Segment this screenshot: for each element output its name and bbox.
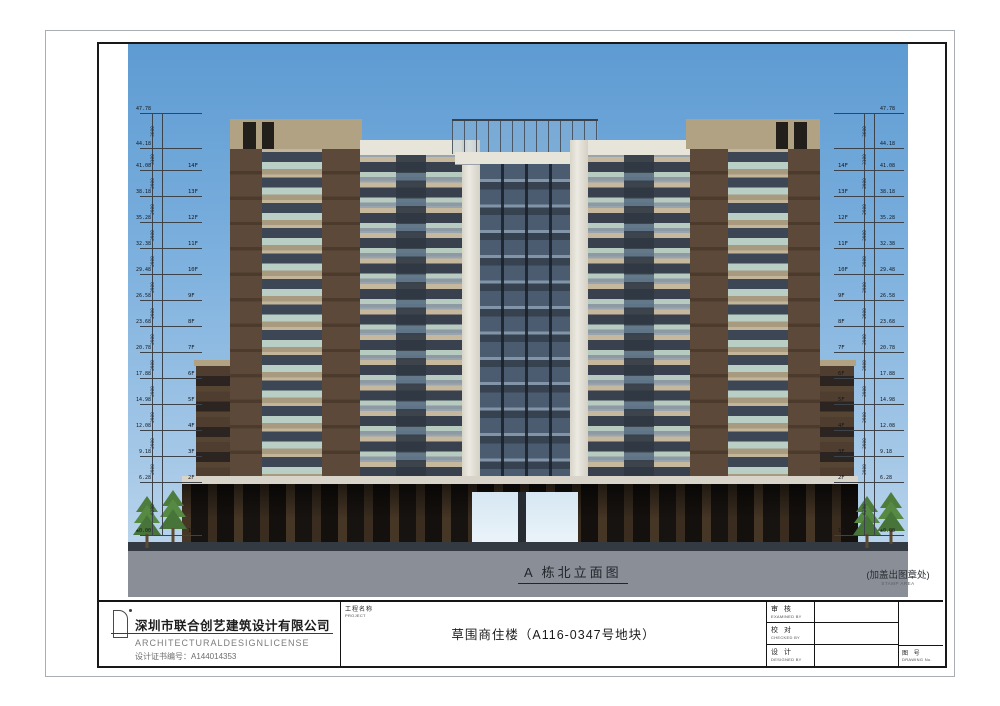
segment-height-dim: 2900 <box>151 412 156 423</box>
right-balcony-wing <box>728 149 788 476</box>
left-brown-pier <box>230 149 262 476</box>
segment-height-dim: 3100 <box>151 154 156 165</box>
level-elevation: 35.28 <box>136 216 151 221</box>
level-tick <box>834 248 904 249</box>
segment-height-dim: 3600 <box>151 126 156 137</box>
designed-by-en: DESIGNED BY <box>771 657 814 662</box>
dimension-line <box>874 113 875 535</box>
designed-by-value <box>815 645 898 666</box>
level-tick <box>834 222 904 223</box>
level-elevation: 20.78 <box>136 346 151 351</box>
floor-label: 12F <box>838 215 848 221</box>
left-roof-bulkhead-2 <box>262 122 274 149</box>
level-elevation: 32.38 <box>880 242 895 247</box>
floor-label: 5F <box>838 397 845 403</box>
level-elevation: 38.18 <box>136 190 151 195</box>
level-elevation: 6.28 <box>136 476 151 481</box>
floor-label: 13F <box>188 189 198 195</box>
floor-label: 8F <box>188 319 195 325</box>
project-name: 草围商住楼（A116-0347号地块） <box>341 624 766 643</box>
level-tick <box>140 170 202 171</box>
project-label: 工程名称 PROJECT <box>345 604 373 618</box>
level-elevation: 32.38 <box>136 242 151 247</box>
level-tick <box>834 300 904 301</box>
right-mid-brown-pier <box>690 149 728 476</box>
level-tick <box>140 352 202 353</box>
segment-height-dim: 2900 <box>151 386 156 397</box>
floor-label: 10F <box>838 267 848 273</box>
level-elevation: 44.18 <box>880 142 895 147</box>
level-tick <box>834 378 904 379</box>
segment-height-dim: 2900 <box>863 178 868 189</box>
level-elevation: 29.48 <box>136 268 151 273</box>
floor-label: 10F <box>188 267 198 273</box>
right-brown-pier <box>788 149 820 476</box>
left-white-strip <box>462 140 480 476</box>
level-tick <box>834 352 904 353</box>
checked-by-en: CHECKED BY <box>771 635 814 640</box>
segment-height-dim: 6280 <box>863 504 868 515</box>
company-cert-number: 设计证书编号：A144014353 <box>135 651 236 662</box>
level-elevation: 17.88 <box>136 372 151 377</box>
elevation-rendering: A 栋北立面图 <box>128 44 908 597</box>
level-tick <box>140 148 202 149</box>
left-roof-bulkhead-1 <box>243 122 256 149</box>
left-tower-window-stack <box>396 155 426 476</box>
title-block: 深圳市联合创艺建筑设计有限公司 ARCHITECTURALDESIGNLICEN… <box>99 600 943 664</box>
floor-label: 8F <box>838 319 845 325</box>
title-block-right-cell: 图 号 DRAWING No. <box>898 602 943 666</box>
project-label-cn: 工程名称 <box>345 604 373 613</box>
segment-height-dim: 2900 <box>863 230 868 241</box>
level-tick <box>140 456 202 457</box>
examined-by-value <box>815 602 898 623</box>
floor-label: 12F <box>188 215 198 221</box>
floor-label: 14F <box>838 163 848 169</box>
segment-height-dim: 2900 <box>151 334 156 345</box>
stamp-area-note: (加盖出图章处) STAMP AREA <box>846 567 950 586</box>
floor-label: 7F <box>838 345 845 351</box>
segment-height-dim: 2900 <box>863 256 868 267</box>
company-name: 深圳市联合创艺建筑设计有限公司 <box>135 615 335 634</box>
level-tick <box>834 170 904 171</box>
left-mid-pier-cap <box>318 119 362 149</box>
floor-label: 1F <box>838 528 845 534</box>
segment-height-dim: 2900 <box>151 230 156 241</box>
level-elevation: 41.08 <box>880 164 895 169</box>
floor-label: 5F <box>188 397 195 403</box>
segment-height-dim: 2900 <box>151 360 156 371</box>
level-tick <box>140 430 202 431</box>
dimension-line <box>162 113 163 535</box>
floor-label: 3F <box>188 449 195 455</box>
segment-height-dim: 2900 <box>863 204 868 215</box>
stamp-note-en: STAMP AREA <box>846 581 950 586</box>
level-tick <box>140 326 202 327</box>
examined-by-cn: 审 核 <box>771 604 814 614</box>
level-tick <box>140 535 202 536</box>
stamp-note-cn: (加盖出图章处) <box>846 567 950 581</box>
level-elevation: 41.08 <box>136 164 151 169</box>
checked-by-value <box>815 623 898 644</box>
segment-height-dim: 2900 <box>863 282 868 293</box>
level-elevation: ±0.00 <box>880 529 895 534</box>
floor-label: 3F <box>838 449 845 455</box>
level-tick <box>834 196 904 197</box>
right-mid-pier-cap <box>686 119 730 149</box>
left-balcony-wing <box>262 149 322 476</box>
examined-by-en: EXAMINED BY <box>771 614 814 619</box>
floor-label: 2F <box>188 475 195 481</box>
level-elevation: 47.78 <box>136 107 151 112</box>
left-mid-brown-pier <box>322 149 360 476</box>
level-elevation: 23.68 <box>880 320 895 325</box>
level-tick <box>140 404 202 405</box>
level-elevation: 14.98 <box>880 398 895 403</box>
level-elevation: 12.08 <box>136 424 151 429</box>
level-elevation: 44.18 <box>136 142 151 147</box>
level-elevation: 35.28 <box>880 216 895 221</box>
segment-height-dim: 2900 <box>863 360 868 371</box>
company-underline <box>111 633 333 634</box>
segment-height-dim: 2900 <box>863 412 868 423</box>
level-tick <box>834 456 904 457</box>
level-tick <box>140 113 202 114</box>
right-roof-bulkhead-1 <box>776 122 788 149</box>
right-tower-parapet <box>588 140 690 156</box>
examined-by-label: 审 核 EXAMINED BY <box>767 602 814 623</box>
passage-mullion <box>518 492 526 542</box>
level-elevation: 12.08 <box>880 424 895 429</box>
segment-height-dim: 2900 <box>863 386 868 397</box>
floor-label: 2F <box>838 475 845 481</box>
floor-label: 13F <box>838 189 848 195</box>
level-tick <box>140 248 202 249</box>
segment-height-dim: 2900 <box>863 334 868 345</box>
segment-height-dim: 2900 <box>151 256 156 267</box>
level-elevation: 9.18 <box>136 450 151 455</box>
right-roof-bulkhead-2 <box>794 122 807 149</box>
segment-height-dim: 2900 <box>151 282 156 293</box>
floor-label: 14F <box>188 163 198 169</box>
left-tower-parapet <box>360 140 462 156</box>
level-elevation: 20.78 <box>880 346 895 351</box>
segment-height-dim: 2900 <box>863 438 868 449</box>
designed-by-label: 设 计 DESIGNED BY <box>767 645 814 666</box>
floor-label: 1F <box>188 528 195 534</box>
level-tick <box>834 274 904 275</box>
checked-by-cn: 校 对 <box>771 625 814 635</box>
level-elevation: 29.48 <box>880 268 895 273</box>
drawing-no-label-cn: 图 号 <box>902 648 943 657</box>
designed-by-cn: 设 计 <box>771 647 814 657</box>
level-tick <box>140 300 202 301</box>
segment-height-dim: 3100 <box>863 154 868 165</box>
level-elevation: 14.98 <box>136 398 151 403</box>
segment-height-dim: 2900 <box>151 308 156 319</box>
project-label-en: PROJECT <box>345 613 373 618</box>
floor-label: 7F <box>188 345 195 351</box>
level-elevation: 47.78 <box>880 107 895 112</box>
drawing-sheet: A 栋北立面图 47.78360044.18310041.0814F290038… <box>0 0 1000 706</box>
floor-label: 11F <box>188 241 198 247</box>
level-elevation: 6.28 <box>880 476 892 481</box>
level-tick <box>834 535 904 536</box>
level-elevation: 23.68 <box>136 320 151 325</box>
drawing-caption-text: A 栋北立面图 <box>518 562 628 584</box>
level-elevation: 26.58 <box>880 294 895 299</box>
center-glazed-facade <box>480 164 570 476</box>
floor-label: 4F <box>838 423 845 429</box>
floor-label: 11F <box>838 241 848 247</box>
dimension-ruler-left: 47.78360044.18310041.0814F290038.1813F29… <box>136 44 210 597</box>
right-white-strip <box>570 140 588 476</box>
title-block-role-labels: 审 核 EXAMINED BY 校 对 CHECKED BY 设 计 DESIG… <box>766 602 814 666</box>
level-tick <box>834 430 904 431</box>
title-block-project-cell: 工程名称 PROJECT 草围商住楼（A116-0347号地块） <box>340 602 766 666</box>
level-tick <box>140 378 202 379</box>
level-tick <box>834 113 904 114</box>
segment-height-dim: 3600 <box>863 126 868 137</box>
level-tick <box>834 326 904 327</box>
level-tick <box>834 482 904 483</box>
level-elevation: 26.58 <box>136 294 151 299</box>
segment-height-dim: 2900 <box>151 204 156 215</box>
title-block-role-values <box>814 602 898 666</box>
title-block-company-cell: 深圳市联合创艺建筑设计有限公司 ARCHITECTURALDESIGNLICEN… <box>99 602 340 666</box>
level-elevation: 17.88 <box>880 372 895 377</box>
level-tick <box>140 196 202 197</box>
level-tick <box>834 148 904 149</box>
level-elevation: 9.18 <box>880 450 892 455</box>
drawing-number-cell: 图 号 DRAWING No. <box>899 645 943 666</box>
floor-label: 4F <box>188 423 195 429</box>
level-elevation: ±0.00 <box>136 529 151 534</box>
segment-height-dim: 2900 <box>863 464 868 475</box>
checked-by-label: 校 对 CHECKED BY <box>767 623 814 644</box>
floor-label: 6F <box>838 371 845 377</box>
drawing-no-label-en: DRAWING No. <box>902 657 943 662</box>
segment-height-dim: 2900 <box>151 464 156 475</box>
segment-height-dim: 2900 <box>151 438 156 449</box>
segment-height-dim: 2900 <box>863 308 868 319</box>
level-tick <box>140 222 202 223</box>
level-tick <box>140 482 202 483</box>
segment-height-dim: 2900 <box>151 178 156 189</box>
dimension-ruler-right: 47.78360044.18310041.0814F290038.1813F29… <box>834 44 908 597</box>
right-tower-window-stack <box>624 155 654 476</box>
level-tick <box>834 404 904 405</box>
floor-label: 9F <box>838 293 845 299</box>
level-elevation: 38.18 <box>880 190 895 195</box>
ground-line <box>128 542 908 551</box>
segment-height-dim: 6280 <box>151 504 156 515</box>
company-license: ARCHITECTURALDESIGNLICENSE <box>135 638 310 648</box>
floor-label: 9F <box>188 293 195 299</box>
floor-label: 6F <box>188 371 195 377</box>
level-tick <box>140 274 202 275</box>
